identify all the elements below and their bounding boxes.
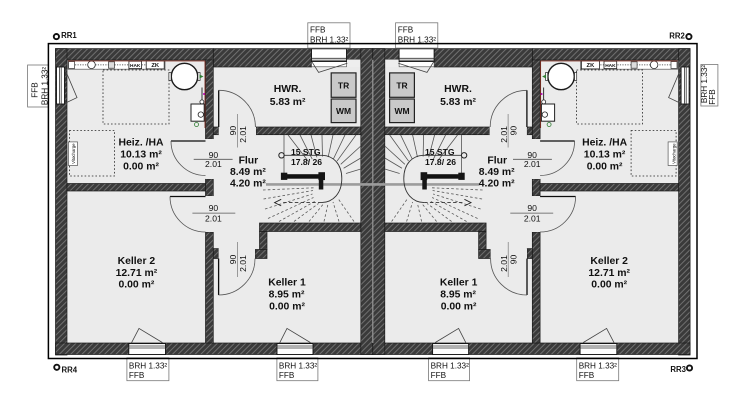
svg-text:90: 90 [228,255,238,265]
svg-text:BRH 1.33²: BRH 1.33² [129,361,167,370]
svg-text:FFB: FFB [129,371,145,380]
svg-text:17.8/ 26: 17.8/ 26 [291,157,322,167]
svg-text:90: 90 [228,126,238,136]
svg-text:2.01: 2.01 [238,126,248,143]
svg-text:90: 90 [209,203,219,213]
svg-text:4.20 m²: 4.20 m² [479,179,515,190]
svg-text:TR: TR [396,80,407,90]
svg-text:Flur: Flur [239,155,259,166]
svg-text:Vitocharge: Vitocharge [71,143,76,164]
svg-text:FFB: FFB [579,371,595,380]
svg-text:HAK: HAK [130,63,141,69]
svg-text:0.00 m²: 0.00 m² [123,161,159,172]
svg-text:Heiz. /HA: Heiz. /HA [118,138,164,149]
svg-text:BRH 1.33²: BRH 1.33² [41,67,50,105]
svg-text:Keller 2: Keller 2 [118,256,156,267]
svg-text:2.01: 2.01 [524,213,541,223]
svg-text:RR4: RR4 [62,365,78,374]
svg-text:HWR.: HWR. [274,84,302,95]
svg-text:BRH 1.33²: BRH 1.33² [431,361,469,370]
svg-text:0.00 m²: 0.00 m² [591,280,627,291]
svg-text:0.00 m²: 0.00 m² [587,161,623,172]
svg-text:BRH 1.33²: BRH 1.33² [579,361,617,370]
svg-text:BRH 1.33²: BRH 1.33² [398,35,436,44]
svg-text:FFB: FFB [279,371,295,380]
svg-text:17.8/ 26: 17.8/ 26 [425,157,456,167]
svg-text:5.83 m²: 5.83 m² [440,97,476,108]
svg-text:WM: WM [394,106,409,116]
svg-text:Keller 1: Keller 1 [268,278,306,289]
svg-text:0.00 m²: 0.00 m² [269,302,305,313]
svg-text:2.01: 2.01 [499,126,509,143]
svg-text:Vitocharge: Vitocharge [671,143,676,164]
svg-text:Flur: Flur [487,155,507,166]
svg-text:FFB: FFB [310,26,326,35]
svg-text:HAK: HAK [605,63,616,69]
svg-text:HWR.: HWR. [444,84,472,95]
svg-text:0.00 m²: 0.00 m² [118,280,154,291]
svg-text:RR1: RR1 [61,31,77,40]
svg-text:BRH 1.33²: BRH 1.33² [279,361,317,370]
svg-text:5.83 m²: 5.83 m² [270,97,306,108]
svg-text:0.00 m²: 0.00 m² [441,302,477,313]
svg-text:10.13 m²: 10.13 m² [120,150,162,161]
svg-text:8.49 m²: 8.49 m² [230,167,266,178]
svg-text:12.71 m²: 12.71 m² [588,268,630,279]
svg-text:WM: WM [336,106,351,116]
svg-text:Keller 1: Keller 1 [440,278,478,289]
svg-text:ZK: ZK [587,63,596,69]
svg-text:2.01: 2.01 [205,159,222,169]
svg-text:2.01: 2.01 [499,255,509,272]
svg-text:BRH 1.33²: BRH 1.33² [310,35,348,44]
svg-text:15 STG: 15 STG [425,147,455,157]
svg-text:RR3: RR3 [670,365,686,374]
svg-text:10.13 m²: 10.13 m² [584,150,626,161]
svg-text:2.01: 2.01 [524,159,541,169]
svg-text:TR: TR [338,80,349,90]
svg-text:4.20 m²: 4.20 m² [230,179,266,190]
svg-text:12.71 m²: 12.71 m² [116,268,158,279]
svg-text:FFB: FFB [398,26,414,35]
svg-text:ZK: ZK [151,63,160,69]
svg-text:FFB: FFB [31,82,40,98]
svg-text:FFB: FFB [431,371,447,380]
svg-text:Heiz. /HA: Heiz. /HA [582,138,628,149]
svg-text:RR2: RR2 [669,32,685,41]
svg-text:90: 90 [527,203,537,213]
svg-text:2.01: 2.01 [238,255,248,272]
svg-text:8.95 m²: 8.95 m² [440,290,476,301]
svg-text:2.01: 2.01 [205,213,222,223]
svg-text:FFB: FFB [708,89,717,105]
svg-text:90: 90 [509,255,519,265]
svg-text:8.49 m²: 8.49 m² [479,167,515,178]
svg-text:Keller 2: Keller 2 [590,256,628,267]
svg-text:15 STG: 15 STG [291,147,321,157]
svg-text:8.95 m²: 8.95 m² [269,290,305,301]
svg-text:90: 90 [509,126,519,136]
